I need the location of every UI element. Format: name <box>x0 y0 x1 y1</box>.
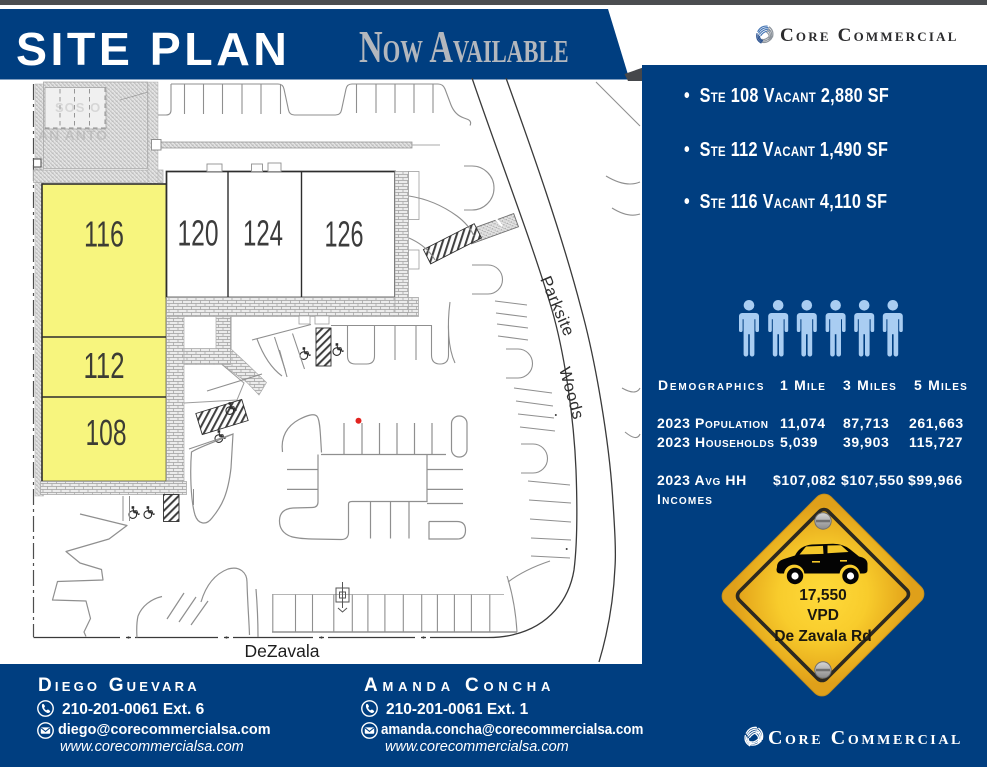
svg-text:SOS O: SOS O <box>55 100 101 115</box>
svg-text:Parksite: Parksite <box>536 274 577 340</box>
svg-text:De Zavala Rd: De Zavala Rd <box>774 628 871 645</box>
svg-text:17,550: 17,550 <box>799 587 846 604</box>
svg-text:120: 120 <box>178 213 219 254</box>
svg-text:VPD: VPD <box>807 607 839 624</box>
svg-text:112: 112 <box>84 345 125 386</box>
svg-text:126: 126 <box>325 214 364 255</box>
svg-text:AN ANTO: AN ANTO <box>38 127 108 143</box>
svg-text:124: 124 <box>243 213 283 254</box>
svg-text:116: 116 <box>84 214 124 255</box>
svg-text:Woods: Woods <box>555 365 587 421</box>
svg-text:108: 108 <box>86 412 127 453</box>
svg-text:DeZavala: DeZavala <box>245 641 320 661</box>
